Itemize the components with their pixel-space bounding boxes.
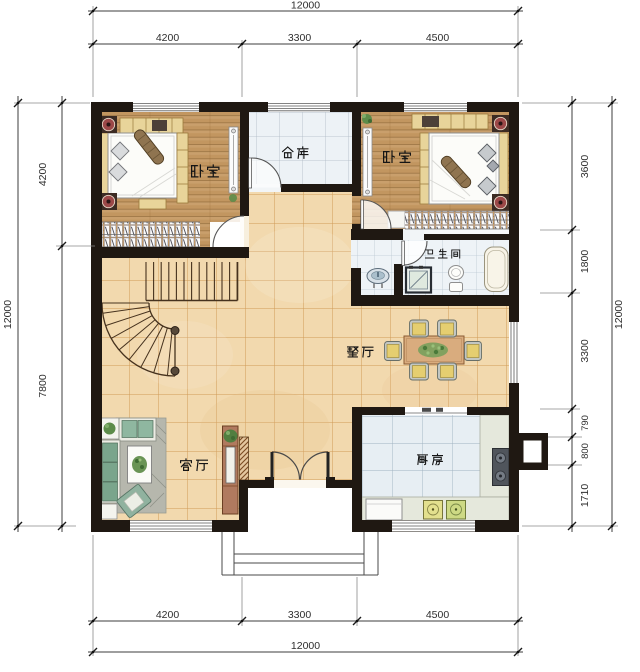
svg-text:12000: 12000 (291, 640, 320, 652)
svg-text:1710: 1710 (579, 484, 591, 508)
svg-text:3300: 3300 (288, 609, 312, 621)
svg-text:4500: 4500 (426, 609, 450, 621)
svg-text:800: 800 (580, 443, 591, 459)
svg-text:12000: 12000 (2, 300, 14, 329)
svg-text:12000: 12000 (613, 300, 625, 329)
svg-text:3600: 3600 (579, 155, 591, 179)
svg-text:790: 790 (580, 415, 591, 431)
svg-text:3300: 3300 (288, 32, 312, 44)
svg-text:3300: 3300 (579, 339, 591, 363)
svg-text:7800: 7800 (37, 374, 49, 398)
svg-text:4200: 4200 (37, 163, 49, 187)
svg-text:1800: 1800 (579, 250, 591, 274)
svg-text:12000: 12000 (291, 0, 320, 12)
svg-text:4200: 4200 (156, 32, 180, 44)
svg-text:4500: 4500 (426, 32, 450, 44)
svg-text:4200: 4200 (156, 609, 180, 621)
